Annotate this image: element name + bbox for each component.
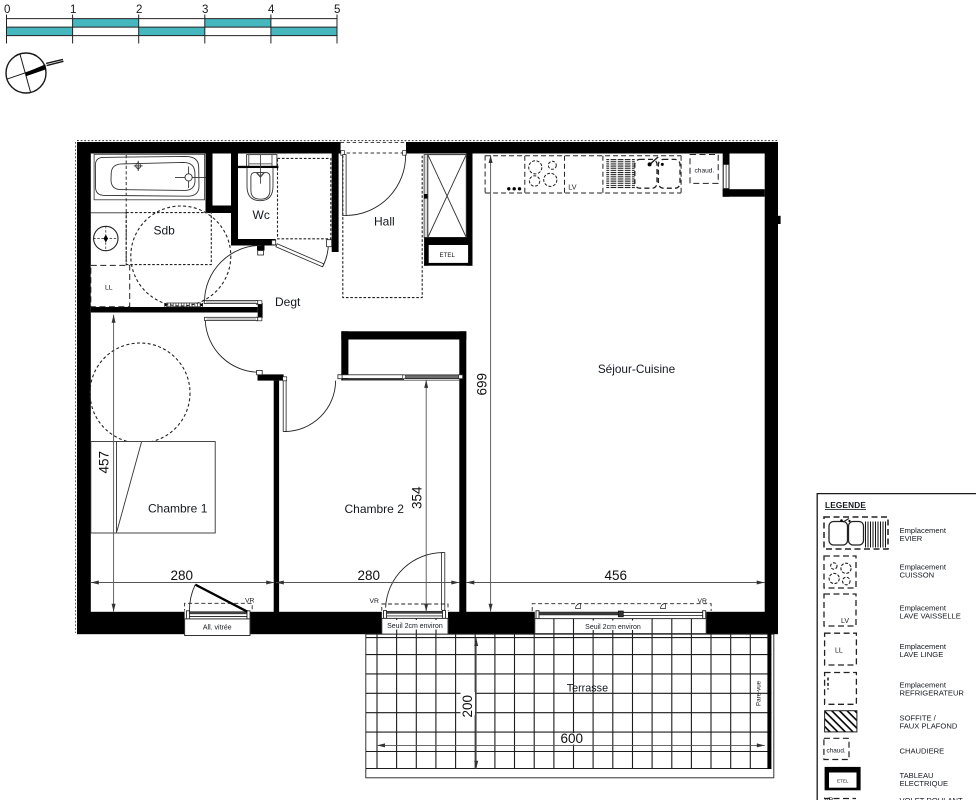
svg-text:Seuil 2cm environ: Seuil 2cm environ xyxy=(585,624,641,631)
svg-text:CHAUDIERE: CHAUDIERE xyxy=(900,747,945,756)
svg-text:280: 280 xyxy=(171,568,194,583)
svg-text:ETEL: ETEL xyxy=(440,252,456,259)
svg-text:4: 4 xyxy=(268,4,275,16)
svg-text:LL: LL xyxy=(105,285,113,292)
svg-text:354: 354 xyxy=(410,486,425,509)
svg-text:LEGENDE: LEGENDE xyxy=(825,501,866,510)
svg-text:456: 456 xyxy=(605,568,628,583)
svg-text:VOLET ROULANT: VOLET ROULANT xyxy=(900,796,964,800)
svg-text:VR: VR xyxy=(245,598,255,605)
svg-text:Séjour-Cuisine: Séjour-Cuisine xyxy=(598,362,676,376)
svg-text:VR: VR xyxy=(698,598,708,605)
svg-text:699: 699 xyxy=(475,373,490,396)
svg-text:CUISSON: CUISSON xyxy=(900,571,935,580)
svg-text:280: 280 xyxy=(358,568,381,583)
svg-text:Chambre 2: Chambre 2 xyxy=(345,502,405,516)
svg-text:Wc: Wc xyxy=(253,208,270,222)
svg-text:EVIER: EVIER xyxy=(900,534,923,543)
svg-text:ETEL: ETEL xyxy=(837,779,849,784)
svg-text:Hall: Hall xyxy=(374,215,395,229)
svg-text:LV: LV xyxy=(568,183,576,192)
svg-text:1: 1 xyxy=(70,4,76,16)
svg-text:chaud.: chaud. xyxy=(827,748,846,755)
svg-text:Degt: Degt xyxy=(275,295,301,309)
svg-text:LL: LL xyxy=(835,648,843,655)
svg-text:Terrasse: Terrasse xyxy=(567,683,608,695)
svg-text:457: 457 xyxy=(97,451,112,474)
svg-text:Seuil 2cm environ: Seuil 2cm environ xyxy=(387,623,443,630)
svg-text:Pare-vue: Pare-vue xyxy=(756,680,763,706)
svg-text:REFRIGERATEUR: REFRIGERATEUR xyxy=(900,689,965,698)
svg-text:chaud.: chaud. xyxy=(695,168,715,175)
svg-text:2: 2 xyxy=(136,4,142,16)
svg-text:600: 600 xyxy=(561,731,584,746)
svg-text:LV: LV xyxy=(841,618,849,625)
svg-text:LAVE LINGE: LAVE LINGE xyxy=(900,650,944,659)
svg-text:3: 3 xyxy=(202,4,208,16)
svg-text:Sdb: Sdb xyxy=(154,224,176,238)
svg-text:0: 0 xyxy=(4,4,10,16)
svg-text:Chambre 1: Chambre 1 xyxy=(148,502,208,516)
svg-text:5: 5 xyxy=(334,4,340,16)
svg-text:All. vitrée: All. vitrée xyxy=(203,625,232,632)
svg-text:FAUX PLAFOND: FAUX PLAFOND xyxy=(900,722,958,731)
svg-text:ELECTRIQUE: ELECTRIQUE xyxy=(900,779,949,788)
svg-text:200: 200 xyxy=(460,695,475,718)
svg-text:VR: VR xyxy=(370,598,380,605)
svg-text:LAVE VAISSELLE: LAVE VAISSELLE xyxy=(900,612,961,621)
